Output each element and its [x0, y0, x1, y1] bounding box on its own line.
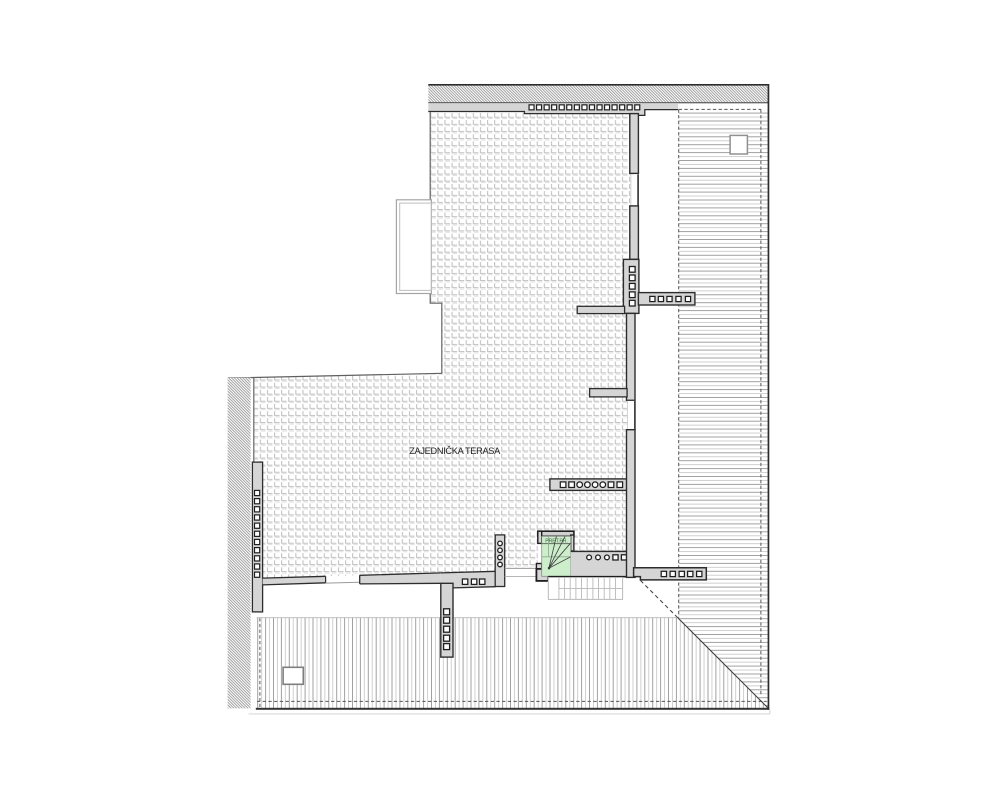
svg-text:PRET.PR.: PRET.PR. — [545, 538, 568, 544]
svg-text:ZAJEDNIČKA TERASA: ZAJEDNIČKA TERASA — [409, 446, 501, 456]
